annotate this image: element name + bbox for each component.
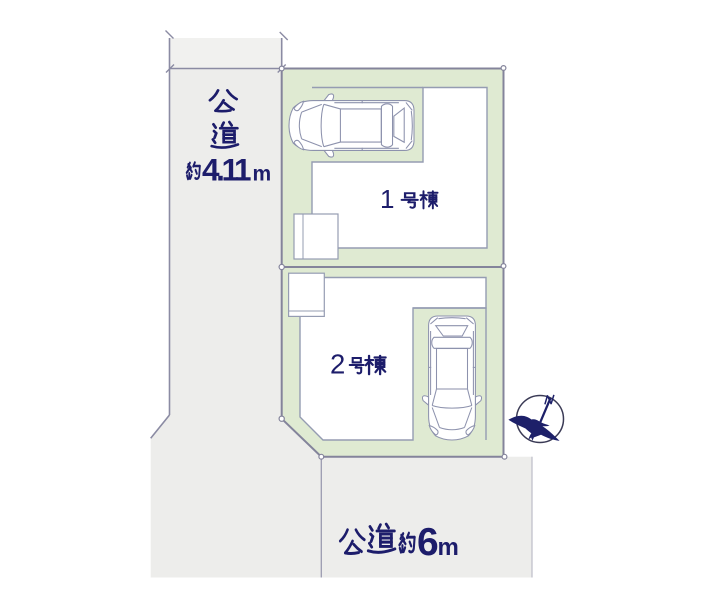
svg-text:4.11: 4.11 (202, 152, 252, 188)
svg-text:m: m (253, 163, 272, 186)
svg-text:m: m (438, 534, 459, 561)
svg-text:2: 2 (330, 349, 345, 380)
svg-text:6: 6 (417, 521, 439, 564)
svg-text:1: 1 (380, 184, 394, 214)
